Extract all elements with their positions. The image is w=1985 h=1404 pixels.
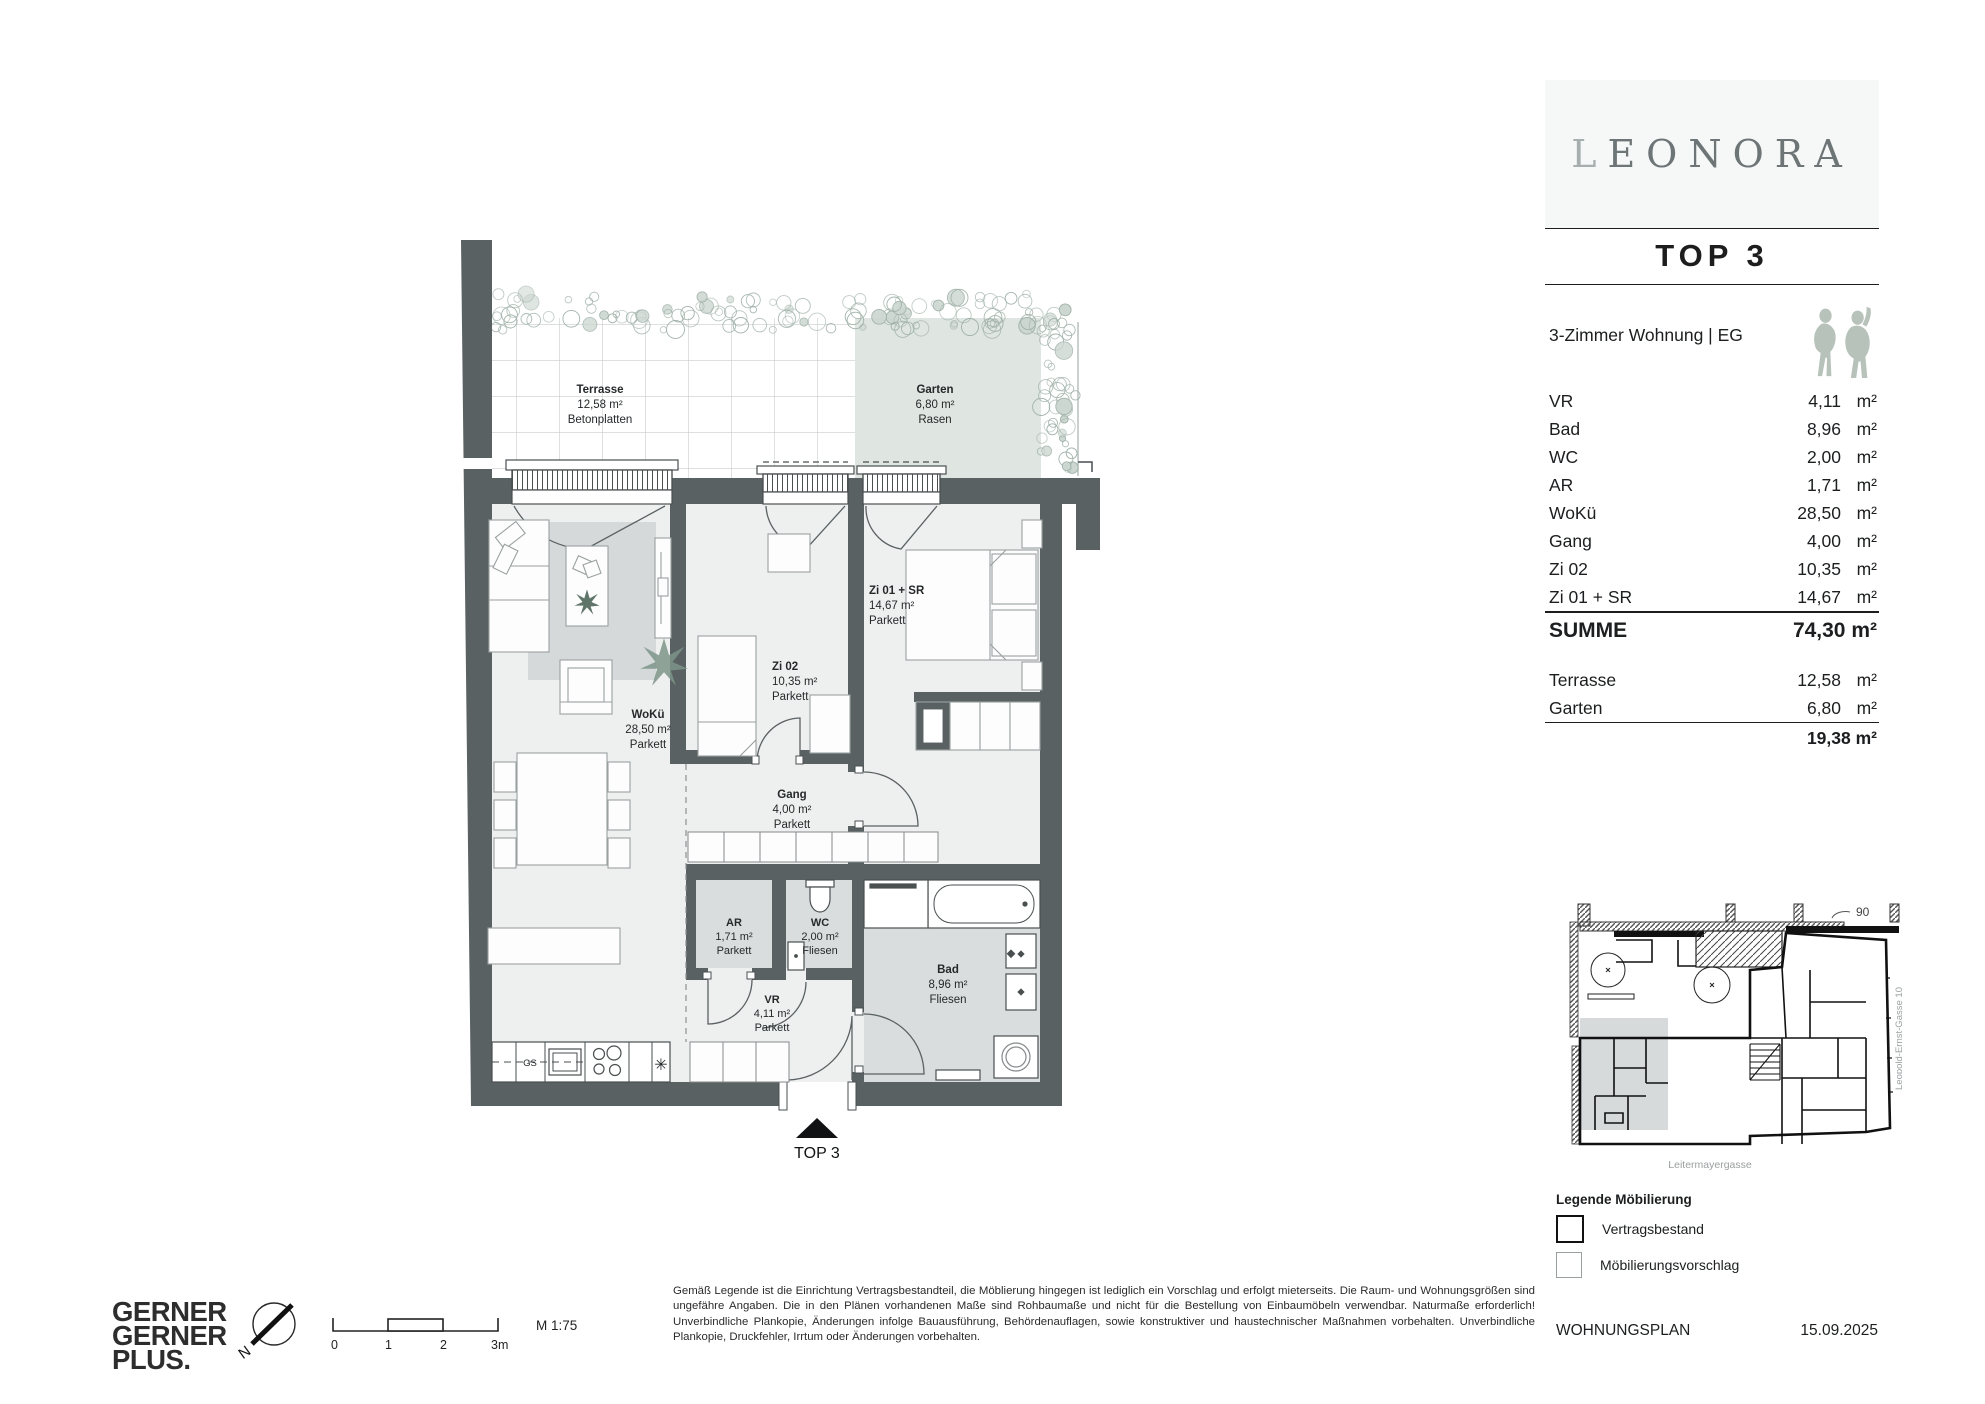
scale-bar: 0 1 2 3m bbox=[325, 1304, 515, 1360]
svg-text:Terrasse: Terrasse bbox=[576, 384, 623, 396]
svg-text:0: 0 bbox=[331, 1338, 338, 1352]
site-key-plan: 90 Leitermayergasse Leopold-Ernst-Gasse … bbox=[1550, 878, 1902, 1178]
svg-text:WoKü: WoKü bbox=[631, 709, 664, 721]
svg-text:3m: 3m bbox=[491, 1338, 508, 1352]
tv-board bbox=[655, 538, 671, 638]
zi01-furniture bbox=[906, 520, 1042, 750]
svg-text:Betonplatten: Betonplatten bbox=[568, 414, 633, 426]
area-row: WC2,00m² bbox=[1545, 443, 1879, 471]
wohnungsplan-page: GS ✳ bbox=[0, 0, 1985, 1404]
svg-text:6,80 m²: 6,80 m² bbox=[916, 399, 955, 411]
street-label-bottom: Leitermayergasse bbox=[1668, 1159, 1752, 1171]
label-gang: Gang 4,00 m² Parkett bbox=[773, 789, 812, 831]
document-date: 15.09.2025 bbox=[1800, 1322, 1878, 1340]
legend-item: Möbilierungsvorschlag bbox=[1556, 1252, 1886, 1278]
outdoor-row: Garten6,80m² bbox=[1545, 694, 1879, 722]
svg-text:10,35 m²: 10,35 m² bbox=[772, 676, 818, 688]
svg-text:Parkett: Parkett bbox=[630, 739, 667, 751]
legend-item: Vertragsbestand bbox=[1556, 1215, 1886, 1243]
svg-text:Fliesen: Fliesen bbox=[929, 994, 966, 1006]
north-compass: N bbox=[236, 1294, 312, 1370]
scale-label: M 1:75 bbox=[536, 1318, 577, 1333]
nightstand bbox=[1022, 662, 1042, 690]
entrance-marker: TOP 3 bbox=[794, 1118, 840, 1162]
svg-text:Bad: Bad bbox=[937, 964, 959, 976]
unit-type: 3-Zimmer Wohnung | EG bbox=[1549, 307, 1743, 346]
area-row: AR1,71m² bbox=[1545, 471, 1879, 499]
svg-text:1,71 m²: 1,71 m² bbox=[715, 931, 753, 943]
svg-text:28,50 m²: 28,50 m² bbox=[625, 724, 671, 736]
unit-info-panel: LEONORA TOP 3 3-Zimmer Wohnung | EG VR4,… bbox=[1545, 80, 1879, 753]
entrance-label: TOP 3 bbox=[794, 1145, 840, 1162]
wardrobe bbox=[810, 695, 850, 753]
svg-text:12,58 m²: 12,58 m² bbox=[577, 399, 623, 411]
svg-text:Parkett: Parkett bbox=[755, 1022, 790, 1034]
wall-joint bbox=[461, 458, 492, 469]
svg-text:1: 1 bbox=[385, 1338, 392, 1352]
document-type: WOHNUNGSPLAN bbox=[1556, 1322, 1690, 1340]
area-row: Gang4,00m² bbox=[1545, 527, 1879, 555]
bath-mat bbox=[936, 1070, 980, 1080]
sofa bbox=[489, 520, 549, 652]
svg-text:2,00 m²: 2,00 m² bbox=[801, 931, 839, 943]
outdoor-row: Terrasse12,58m² bbox=[1545, 666, 1879, 694]
svg-text:8,96 m²: 8,96 m² bbox=[929, 979, 968, 991]
persons-icon bbox=[1811, 307, 1877, 379]
svg-text:WC: WC bbox=[811, 917, 829, 929]
dishwasher-label: GS bbox=[523, 1058, 537, 1069]
zi01-french-door bbox=[857, 462, 946, 504]
sideboard bbox=[488, 928, 620, 964]
label-wokue: WoKü 28,50 m² Parkett bbox=[625, 709, 671, 751]
svg-text:4,00 m²: 4,00 m² bbox=[773, 804, 812, 816]
project-logo-box: LEONORA bbox=[1545, 80, 1879, 228]
summe-row: SUMME74,30 m² bbox=[1545, 613, 1879, 648]
site-dim-arc bbox=[1832, 912, 1850, 918]
washing-machine bbox=[994, 1036, 1038, 1078]
area-row: WoKü28,50m² bbox=[1545, 499, 1879, 527]
double-bed bbox=[906, 550, 1038, 660]
unit-title: TOP 3 bbox=[1545, 229, 1879, 284]
svg-text:Rasen: Rasen bbox=[918, 414, 951, 426]
svg-text:Zi 01 + SR: Zi 01 + SR bbox=[869, 585, 925, 597]
svg-text:Gang: Gang bbox=[777, 789, 806, 801]
svg-text:Parkett: Parkett bbox=[869, 615, 906, 627]
boundary-mark bbox=[1078, 462, 1092, 472]
floor-plan: GS ✳ bbox=[440, 230, 1120, 1170]
area-row: Zi 0210,35m² bbox=[1545, 555, 1879, 583]
project-logo: LEONORA bbox=[1571, 132, 1853, 176]
north-label: N bbox=[236, 1343, 254, 1363]
terrace-area bbox=[492, 318, 855, 478]
outdoor-total: 19,38 m² bbox=[1545, 723, 1879, 753]
furnishing-proposal-swatch bbox=[1556, 1252, 1582, 1278]
svg-text:Parkett: Parkett bbox=[717, 945, 752, 957]
svg-text:2: 2 bbox=[440, 1338, 447, 1352]
garden-area bbox=[855, 318, 1041, 478]
zi02-french-door bbox=[757, 462, 854, 504]
svg-text:Zi 02: Zi 02 bbox=[772, 661, 798, 673]
furnishing-legend: Legende Möbilierung Vertragsbestand Möbi… bbox=[1556, 1192, 1886, 1287]
label-garten: Garten 6,80 m² Rasen bbox=[916, 384, 955, 426]
nightstand bbox=[1022, 520, 1042, 548]
highlighted-unit bbox=[1580, 1018, 1668, 1130]
area-row: Zi 01 + SR14,67m² bbox=[1545, 583, 1879, 611]
desk bbox=[768, 534, 810, 572]
dining-set bbox=[494, 753, 630, 868]
architect-logo: GERNER GERNER PLUS. bbox=[112, 1300, 227, 1372]
legend-title: Legende Möbilierung bbox=[1556, 1192, 1886, 1207]
street-label-right: Leopold-Ernst-Gasse 10 bbox=[1894, 987, 1902, 1090]
svg-text:Garten: Garten bbox=[916, 384, 953, 396]
svg-text:Fliesen: Fliesen bbox=[802, 945, 837, 957]
sink-icon: ✳ bbox=[654, 1057, 667, 1074]
disclaimer-text: Gemäß Legende ist die Einrichtung Vertra… bbox=[673, 1284, 1535, 1345]
svg-text:AR: AR bbox=[726, 917, 742, 929]
site-number: 90 bbox=[1856, 905, 1870, 919]
area-row: Bad8,96m² bbox=[1545, 415, 1879, 443]
armchair bbox=[560, 660, 612, 714]
svg-text:Parkett: Parkett bbox=[774, 819, 811, 831]
svg-text:14,67 m²: 14,67 m² bbox=[869, 600, 915, 612]
svg-text:VR: VR bbox=[764, 994, 779, 1006]
sr-closet bbox=[916, 702, 1040, 750]
area-row: VR4,11m² bbox=[1545, 387, 1879, 415]
bathtub bbox=[928, 880, 1040, 928]
kitchen-counter: GS ✳ bbox=[492, 1042, 670, 1082]
svg-text:Parkett: Parkett bbox=[772, 691, 809, 703]
living-window bbox=[506, 460, 678, 504]
single-bed bbox=[698, 636, 756, 756]
hatched-block bbox=[1696, 931, 1782, 967]
svg-text:4,11 m²: 4,11 m² bbox=[754, 1008, 791, 1020]
contract-stock-swatch bbox=[1556, 1215, 1584, 1243]
label-terrasse: Terrasse 12,58 m² Betonplatten bbox=[568, 384, 633, 426]
coffee-table bbox=[566, 546, 608, 626]
